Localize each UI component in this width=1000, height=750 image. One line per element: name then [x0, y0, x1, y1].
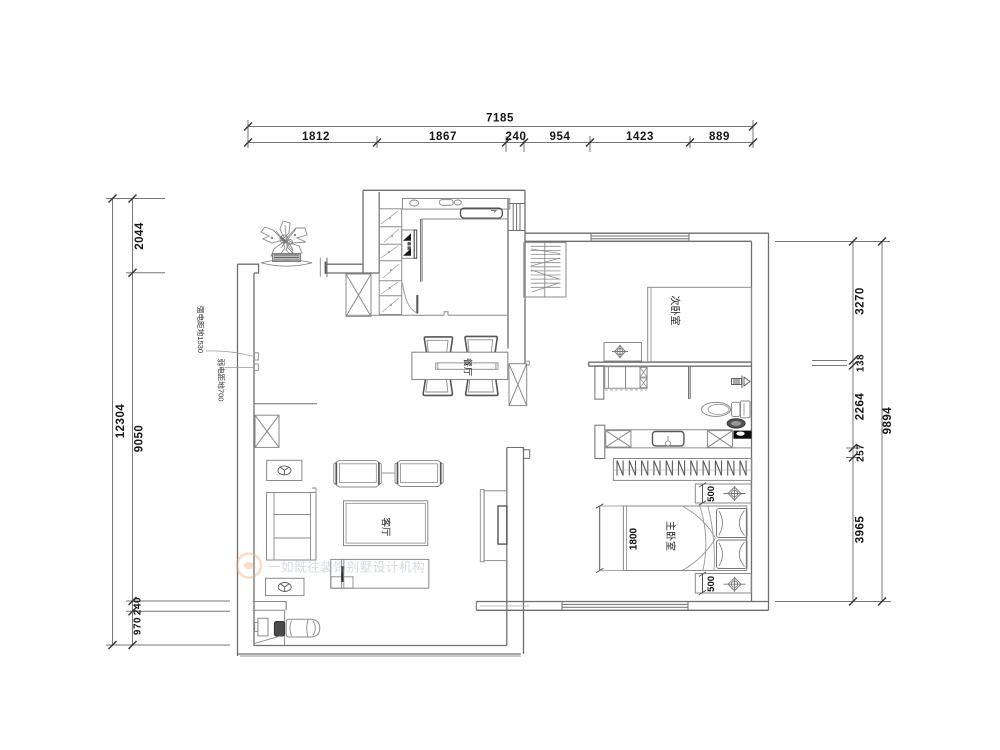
svg-text:240: 240 [133, 597, 144, 615]
svg-text:一如既往装饰别墅设计机构: 一如既往装饰别墅设计机构 [268, 560, 425, 575]
svg-text:500: 500 [706, 576, 717, 592]
svg-text:7185: 7185 [486, 113, 514, 125]
svg-text:弱电距地700: 弱电距地700 [217, 358, 227, 401]
svg-text:138: 138 [856, 354, 867, 372]
svg-text:889: 889 [709, 131, 730, 143]
svg-text:12304: 12304 [115, 404, 127, 439]
svg-text:9050: 9050 [134, 425, 146, 453]
svg-text:餐厅: 餐厅 [463, 358, 474, 376]
svg-text:954: 954 [550, 131, 571, 143]
svg-text:1812: 1812 [302, 131, 330, 143]
svg-text:240: 240 [506, 131, 527, 143]
svg-text:主卧室: 主卧室 [664, 521, 677, 551]
svg-text:1800: 1800 [629, 527, 640, 550]
svg-text:2044: 2044 [134, 222, 146, 250]
svg-text:500: 500 [706, 486, 717, 502]
svg-text:3270: 3270 [855, 287, 867, 315]
svg-text:客厅: 客厅 [380, 517, 392, 537]
svg-text:3965: 3965 [855, 516, 867, 544]
svg-text:2264: 2264 [855, 393, 867, 421]
svg-text:970: 970 [133, 617, 144, 635]
svg-text:强电距地1530: 强电距地1530 [196, 306, 206, 353]
svg-text:1423: 1423 [626, 131, 654, 143]
svg-text:9894: 9894 [882, 407, 894, 435]
svg-text:1867: 1867 [429, 131, 457, 143]
svg-text:次卧室: 次卧室 [669, 296, 682, 326]
svg-text:257: 257 [856, 444, 867, 462]
